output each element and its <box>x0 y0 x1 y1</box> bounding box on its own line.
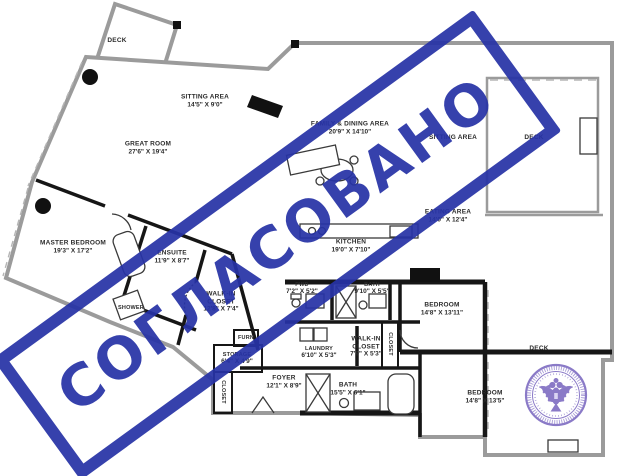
room-label-pwd: PWD7'2" X 5'2" <box>286 282 318 296</box>
room-label-deck-top-left: DECK <box>107 37 126 45</box>
room-label-storage: STORAGE6'4" X 4'9" <box>221 352 253 366</box>
room-label-sitting-area-2: SITTING AREA <box>429 134 477 142</box>
room-dims: 9'10" X 5'5" <box>354 288 389 296</box>
room-name: ENSUITE <box>155 249 190 257</box>
room-dims: 15'5" X 6'1" <box>330 389 365 397</box>
room-dims: 14'5" X 9'0" <box>181 101 229 109</box>
room-dims: 19'0" X 7'10" <box>332 246 371 254</box>
room-name: BEDROOM <box>421 301 463 309</box>
room-label-walk-in-closet-2: WALK-IN CLOSET7'9" X 5'3" <box>342 336 390 359</box>
room-dims: 11'9" X 8'7" <box>155 257 190 265</box>
room-name: CLOSET <box>220 380 226 404</box>
room-label-kitchen: KITCHEN19'0" X 7'10" <box>332 238 371 253</box>
room-label-great-room: GREAT ROOM27'6" X 19'4" <box>125 140 171 155</box>
room-name: SITTING AREA <box>429 134 477 142</box>
room-dims: 20'9" X 14'10" <box>311 128 389 136</box>
room-label-walk-in-closet-master: WALK-IN CLOSET12'8" X 7'4" <box>197 291 245 314</box>
room-name: BATH <box>330 381 365 389</box>
room-label-furn: FURN <box>238 335 254 341</box>
room-name: GREAT ROOM <box>125 140 171 148</box>
room-name: BEDROOM <box>466 389 505 397</box>
room-name: EATING AREA <box>425 208 471 216</box>
room-label-shower: SHOWER <box>118 305 144 311</box>
room-label-bedroom-1: BEDROOM14'8" X 13'11" <box>421 301 463 316</box>
seal-graphic <box>523 362 589 428</box>
room-label-eating-area: EATING AREA14'0" X 12'4" <box>425 208 471 223</box>
room-label-bath-1: BATH9'10" X 5'5" <box>354 282 389 296</box>
room-name: FAMILY & DINING AREA <box>311 120 389 128</box>
room-dims: 27'6" X 19'4" <box>125 148 171 156</box>
room-label-master-bedroom: MASTER BEDROOM19'3" X 17'2" <box>40 239 106 254</box>
room-name: KITCHEN <box>332 238 371 246</box>
room-dims: 6'4" X 4'9" <box>221 358 253 366</box>
room-label-ensuite: ENSUITE11'9" X 8'7" <box>155 249 190 264</box>
room-dims: 14'8" X 13'5" <box>466 397 505 405</box>
room-label-laundry: LAUNDRY6'10" X 5'3" <box>301 346 336 360</box>
round-seal <box>523 362 589 428</box>
room-label-closet-1: CLOSET <box>387 332 393 356</box>
room-label-bedroom-2: BEDROOM14'8" X 13'5" <box>466 389 505 404</box>
room-dims: 12'8" X 7'4" <box>197 306 245 314</box>
room-name: DECK <box>524 134 543 142</box>
room-name: FURN <box>238 335 254 341</box>
floor-plan-page: DECK SITTING AREA14'5" X 9'0" GREAT ROOM… <box>0 0 640 476</box>
room-dims: 6'10" X 5'3" <box>301 352 336 360</box>
room-name: FOYER <box>266 374 301 382</box>
room-dims: 12'1" X 8'9" <box>266 382 301 390</box>
room-label-deck-top-right: DECK <box>524 134 543 142</box>
room-name: CLOSET <box>387 332 393 356</box>
room-name: DECK <box>107 37 126 45</box>
double-headed-eagle-icon <box>539 379 573 412</box>
room-dims: 14'0" X 12'4" <box>425 216 471 224</box>
room-dims: 14'8" X 13'11" <box>421 309 463 317</box>
room-dims: 7'9" X 5'3" <box>342 351 390 359</box>
room-name: WALK-IN CLOSET <box>197 291 245 306</box>
room-name: WALK-IN CLOSET <box>342 336 390 351</box>
room-name: SHOWER <box>118 305 144 311</box>
room-label-foyer: FOYER12'1" X 8'9" <box>266 374 301 389</box>
room-name: SITTING AREA <box>181 93 229 101</box>
room-label-family-dining: FAMILY & DINING AREA20'9" X 14'10" <box>311 120 389 135</box>
room-label-bath-2: BATH15'5" X 6'1" <box>330 381 365 396</box>
room-dims: 19'3" X 17'2" <box>40 247 106 255</box>
room-name: DECK <box>529 345 548 353</box>
room-label-closet-2: CLOSET <box>220 380 226 404</box>
room-label-sitting-area-1: SITTING AREA14'5" X 9'0" <box>181 93 229 108</box>
room-dims: 7'2" X 5'2" <box>286 288 318 296</box>
room-name: MASTER BEDROOM <box>40 239 106 247</box>
room-label-deck-right: DECK <box>529 345 548 353</box>
